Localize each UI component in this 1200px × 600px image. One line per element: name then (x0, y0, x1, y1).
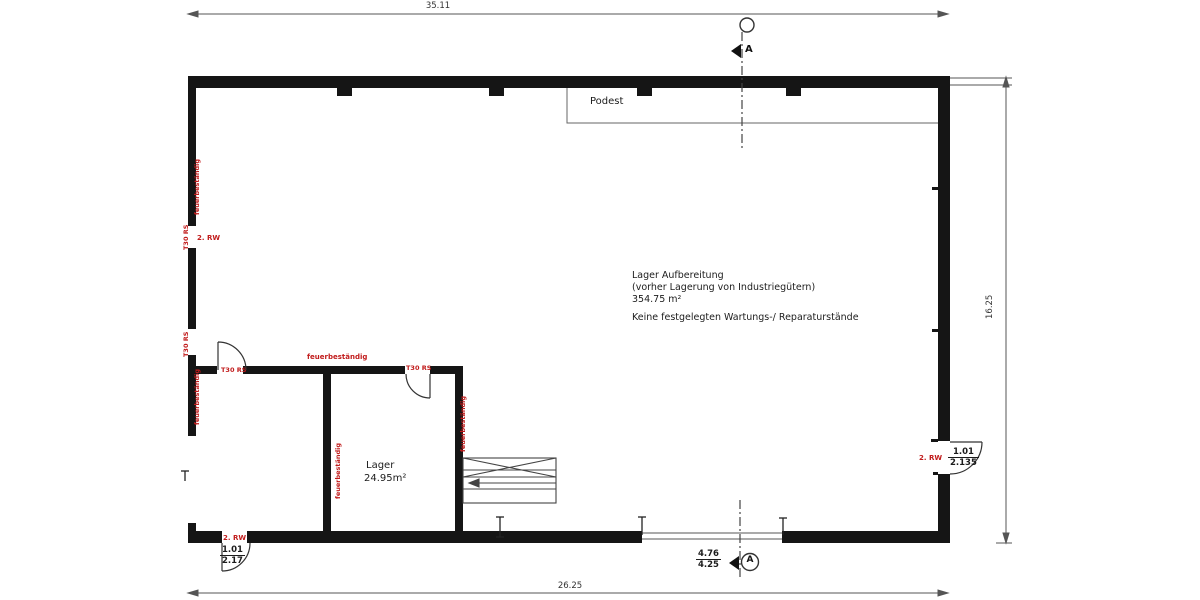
wall-joint-mark (933, 472, 938, 475)
plan-drawing (0, 0, 1200, 600)
floor-plan: 35.11 26.25 16.25 A A Podest Lager Aufbe… (0, 0, 1200, 600)
hall-name: Lager Aufbereitung (632, 270, 859, 282)
escape-route-right: 2. RW (919, 455, 942, 463)
hall-text-block: Lager Aufbereitung (vorher Lagerung von … (632, 270, 859, 324)
section-label-bottom: A (747, 556, 754, 566)
column-stub (489, 88, 504, 96)
wall-bottom-seg1 (188, 531, 222, 543)
fire-rating-left-wall-1: feuerbeständig (194, 159, 201, 215)
column-stub (337, 88, 352, 96)
hall-note: Keine festgelegten Wartungs-/ Reparaturs… (632, 312, 859, 324)
dim-top-label: 35.11 (420, 2, 456, 11)
wall-bottom-seg2 (247, 531, 642, 543)
gate-height: 4.25 (696, 560, 721, 570)
wall-right-seg1 (938, 76, 950, 441)
fire-rating-interior-wall-2: feuerbeständig (460, 396, 467, 452)
door-rating-left-1: T30 RS (183, 225, 190, 250)
fire-rating-interior-wall-1: feuerbeständig (335, 443, 342, 499)
wall-joint-mark (931, 439, 938, 442)
stair-direction-arrow (469, 479, 479, 487)
wall-bottom-seg3 (782, 531, 948, 543)
door-rating-partition-1: T30 RS (221, 367, 246, 374)
door-height: 2.17 (220, 556, 245, 566)
column-stub (786, 88, 801, 96)
section-arrow-top (731, 44, 741, 58)
wall-joint-mark (932, 187, 938, 190)
dim-bottom-label: 26.25 (552, 582, 588, 591)
hall-former-use: (vorher Lagerung von Industriegütern) (632, 282, 859, 294)
wall-top (188, 76, 948, 88)
wall-interior-vertical1 (323, 366, 331, 543)
dim-right-label: 16.25 (986, 295, 995, 319)
escape-route-left: 2. RW (197, 235, 220, 243)
tick-marks (181, 471, 787, 537)
section-circle-top (740, 18, 754, 32)
door-size-right: 1.01 2.135 (948, 447, 979, 468)
lager-room-name: Lager (366, 460, 394, 471)
lager-room-area: 24.95m² (364, 473, 406, 484)
gate-opening (642, 533, 782, 539)
door-partition-2 (406, 374, 430, 398)
section-label-top: A (745, 44, 753, 55)
wall-joint-mark (932, 329, 938, 332)
hall-area: 354.75 m² (632, 294, 859, 306)
column-stub (637, 88, 652, 96)
door-rating-left-2: T30 RS (183, 332, 190, 357)
door-rating-partition-2: T30 RS (406, 365, 431, 372)
section-arrow-bottom (729, 556, 739, 570)
fire-rating-partition: feuerbeständig (307, 354, 367, 362)
podest-label: Podest (590, 96, 623, 107)
door-size-bottom-left: 1.01 2.17 (220, 545, 245, 566)
wall-left-seg2 (188, 248, 196, 329)
stairs (463, 458, 556, 503)
door-width: 1.01 (220, 545, 245, 556)
wall-interior-vertical2 (455, 366, 463, 543)
escape-route-bottom: 2. RW (223, 535, 246, 543)
gate-width: 4.76 (696, 549, 721, 560)
door-height: 2.135 (948, 458, 979, 468)
gate-size: 4.76 4.25 (696, 549, 721, 570)
fire-rating-left-wall-2: feuerbeständig (194, 369, 201, 425)
door-width: 1.01 (948, 447, 979, 458)
